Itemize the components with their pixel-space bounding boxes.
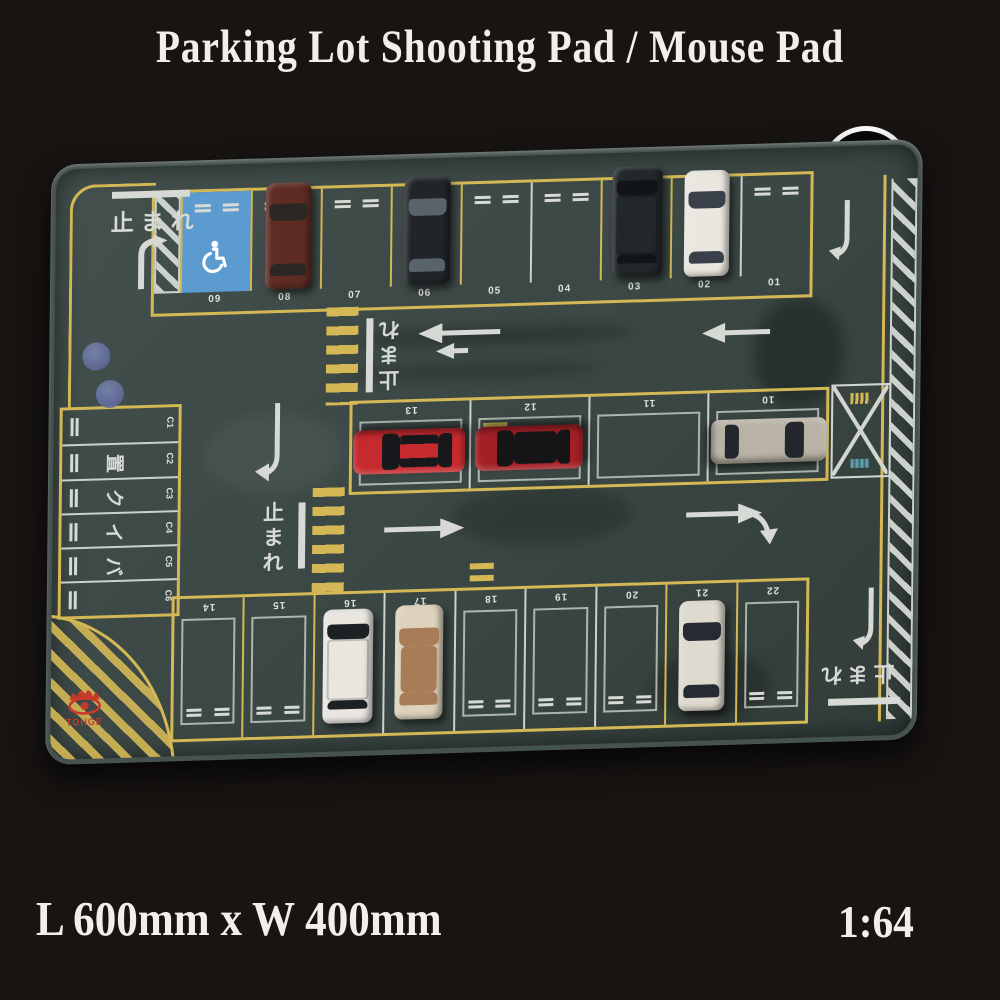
bike-space-c2: 置 C2 <box>62 441 178 479</box>
stop-line <box>298 502 306 568</box>
product-photo: Parking Lot Shooting Pad / Mouse Pad F <box>0 0 1000 1000</box>
space-label: C6 <box>164 590 174 602</box>
bike-space-c5: バ C5 <box>61 544 177 582</box>
space-label: 07 <box>320 289 390 302</box>
bike-space-c6: C6 <box>61 579 177 617</box>
parking-space-14: 14 <box>173 597 243 739</box>
stop-text-flipped: 止まれ <box>816 659 894 691</box>
space-label: C1 <box>166 416 176 428</box>
space-inner-line <box>597 412 701 479</box>
wheel-stop <box>70 489 73 507</box>
wheel-stop <box>69 523 72 541</box>
car-space-13 <box>353 428 465 475</box>
space-inner-line <box>462 609 518 717</box>
stop-text: 止まれ <box>111 201 201 238</box>
teal-marker <box>851 459 869 469</box>
parking-lot-surface: 09 08 07 06 05 <box>50 144 918 760</box>
car-space-10 <box>711 417 827 464</box>
right-arrow <box>382 514 466 545</box>
space-label: 04 <box>530 282 600 295</box>
space-label: 19 <box>527 590 596 603</box>
stop-text-flipped: 止まれ <box>376 315 407 391</box>
bike-kana: ク <box>102 488 129 508</box>
scale-label: 1:64 <box>838 896 914 948</box>
left-arrow <box>700 318 772 346</box>
bike-parking-column: C1 置 C2 ク C3 イ C4 <box>58 404 182 620</box>
space-label: 15 <box>245 598 314 611</box>
parking-space-04: 04 <box>530 180 601 302</box>
parking-space-19: 19 <box>523 587 595 729</box>
space-label: C2 <box>165 453 175 465</box>
brand-logo: TOHGE <box>56 684 112 728</box>
wheel-stop <box>69 592 72 610</box>
stop-line <box>366 318 374 392</box>
space-label: 20 <box>597 588 666 601</box>
hook-down-arrow <box>851 585 882 652</box>
space-inner-line <box>744 601 800 709</box>
parking-space-18: 18 <box>453 589 525 731</box>
wheel-stop <box>70 454 73 472</box>
space-label: 06 <box>390 287 460 300</box>
parking-space-05: 05 <box>460 182 531 304</box>
turn-up-arrow <box>129 234 170 291</box>
space-label: 08 <box>250 291 320 304</box>
crosswalk <box>312 487 345 596</box>
car-space-21 <box>678 600 725 711</box>
stop-text: 止まれ <box>256 501 287 577</box>
hook-down-arrow <box>827 198 858 263</box>
bike-space-c3: ク C3 <box>62 476 178 514</box>
wheel-stop <box>70 418 73 436</box>
space-inner-line <box>251 615 307 723</box>
brand-logo-text: TOHGE <box>56 716 112 729</box>
space-label: 14 <box>175 600 244 613</box>
wheel-stop <box>743 186 811 191</box>
bike-kanji: 置 <box>102 454 129 474</box>
car-space-08 <box>265 182 312 289</box>
space-label: 12 <box>471 399 588 413</box>
car-space-17 <box>394 604 443 720</box>
car-space-16 <box>322 608 373 724</box>
space-label: C4 <box>165 521 175 533</box>
space-label: 03 <box>600 280 670 293</box>
mouse-pad: 09 08 07 06 05 <box>45 139 923 765</box>
space-label: 11 <box>590 395 707 409</box>
parking-space-07: 07 <box>320 187 391 309</box>
yellow-marker <box>850 393 870 405</box>
space-inner-line <box>532 607 588 715</box>
space-label: 01 <box>740 276 810 289</box>
space-label: 21 <box>667 586 736 599</box>
parking-space-01: 01 <box>739 174 810 296</box>
parking-space-22: 22 <box>734 580 806 722</box>
space-label: 13 <box>352 402 469 416</box>
double-left-arrow <box>416 318 504 363</box>
bike-kana: イ <box>101 522 128 542</box>
stain <box>452 483 633 548</box>
bike-space-c1: C1 <box>62 407 178 445</box>
space-label: 09 <box>180 293 250 306</box>
curve-left-arrow <box>255 401 290 486</box>
right-turn-arrow <box>684 498 780 549</box>
space-label: 10 <box>709 392 826 406</box>
bike-space-c4: イ C4 <box>61 510 177 548</box>
space-label: 22 <box>738 583 807 596</box>
dimensions-label: L 600mm x W 400mm <box>36 890 442 947</box>
crosswalk <box>326 307 359 406</box>
space-label: 18 <box>456 592 525 605</box>
car-space-03 <box>612 166 663 278</box>
space-label: C3 <box>165 487 175 499</box>
parking-space-20: 20 <box>594 585 666 727</box>
wheel-stop <box>69 557 72 575</box>
eye-crown-logo-icon <box>63 684 107 717</box>
wheelchair-icon <box>196 237 230 276</box>
wheel-stop <box>533 192 601 197</box>
space-inner-line <box>180 617 236 725</box>
parking-space-11: 11 <box>588 393 708 485</box>
space-label: 16 <box>315 596 384 609</box>
wheel-stop <box>463 195 531 200</box>
car-space-12 <box>475 424 583 471</box>
car-space-02 <box>684 170 730 277</box>
page-title: Parking Lot Shooting Pad / Mouse Pad <box>80 20 920 74</box>
space-label: 05 <box>460 285 530 298</box>
space-label: 02 <box>670 278 740 291</box>
car-space-06 <box>404 176 451 285</box>
space-label: C5 <box>164 556 174 568</box>
yellow-dash <box>470 563 494 588</box>
keep-clear-x-box <box>830 383 891 479</box>
space-inner-line <box>603 605 659 713</box>
bike-kana: バ <box>101 557 128 577</box>
wheel-stop <box>323 199 391 204</box>
parking-space-15: 15 <box>242 595 314 737</box>
